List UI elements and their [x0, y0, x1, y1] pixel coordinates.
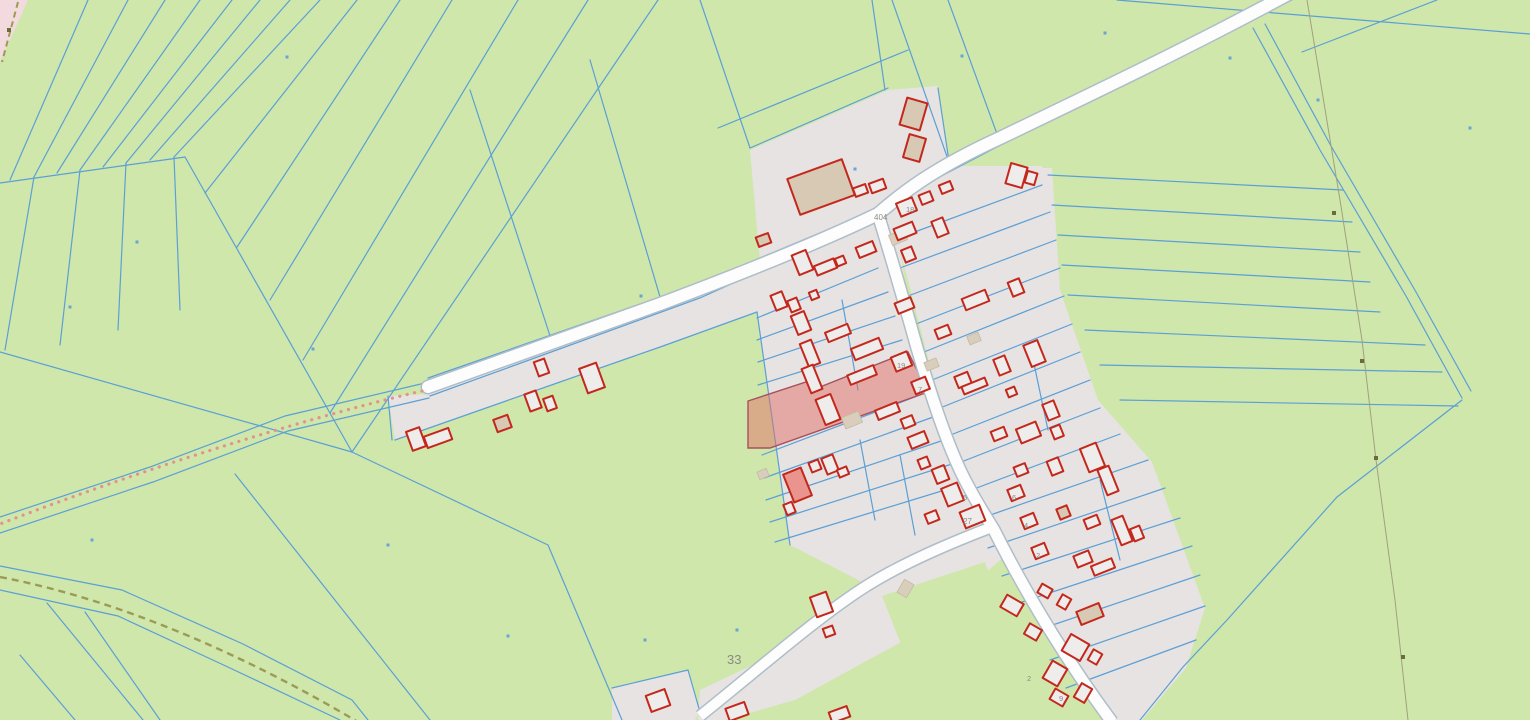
building-outline[interactable] [835, 256, 846, 267]
building-outline[interactable] [1006, 387, 1017, 398]
survey-point-marker [1401, 655, 1405, 659]
map-viewport[interactable]: 334041819752764229 [0, 0, 1530, 720]
parcel-number-label: 7 [918, 385, 922, 394]
parcel-point-marker [69, 306, 72, 309]
building-outline[interactable] [808, 459, 821, 472]
parcel-number-label: 33 [727, 652, 741, 667]
building-outline[interactable] [809, 290, 819, 300]
parcel-point-marker [387, 544, 390, 547]
survey-point-marker [7, 28, 11, 32]
parcel-number-label: 6 [1012, 493, 1016, 502]
parcel-point-marker [1469, 127, 1472, 130]
parcel-point-marker [1104, 32, 1107, 35]
parcel-point-marker [286, 56, 289, 59]
parcel-number-label: 19 [897, 361, 905, 370]
parcel-point-marker [640, 295, 643, 298]
parcel-point-marker [961, 55, 964, 58]
cadastral-map-svg[interactable]: 334041819752764229 [0, 0, 1530, 720]
parcel-point-marker [1229, 57, 1232, 60]
parcel-point-marker [91, 539, 94, 542]
parcel-number-label: 2 [1027, 674, 1031, 683]
parcel-number-label: 4 [1024, 521, 1028, 530]
parcel-number-label: 5 [963, 493, 967, 502]
parcel-number-label: 2 [1036, 551, 1040, 560]
parcel-point-marker [136, 241, 139, 244]
parcel-number-label: 18 [906, 205, 914, 214]
survey-point-marker [1374, 456, 1378, 460]
parcel-point-marker [1317, 99, 1320, 102]
parcel-point-marker [312, 348, 315, 351]
parcel-point-marker [854, 168, 857, 171]
parcel-number-label: 404 [874, 213, 888, 222]
survey-point-marker [1360, 359, 1364, 363]
building-outline[interactable] [917, 456, 930, 469]
parcel-point-marker [507, 635, 510, 638]
building-outline[interactable] [1025, 171, 1038, 185]
parcel-number-label: 27 [963, 517, 972, 526]
parcel-point-marker [644, 639, 647, 642]
parcel-point-marker [736, 629, 739, 632]
building-outline[interactable] [823, 626, 835, 638]
survey-point-marker [1332, 211, 1336, 215]
parcel-number-label: 9 [1059, 694, 1063, 703]
